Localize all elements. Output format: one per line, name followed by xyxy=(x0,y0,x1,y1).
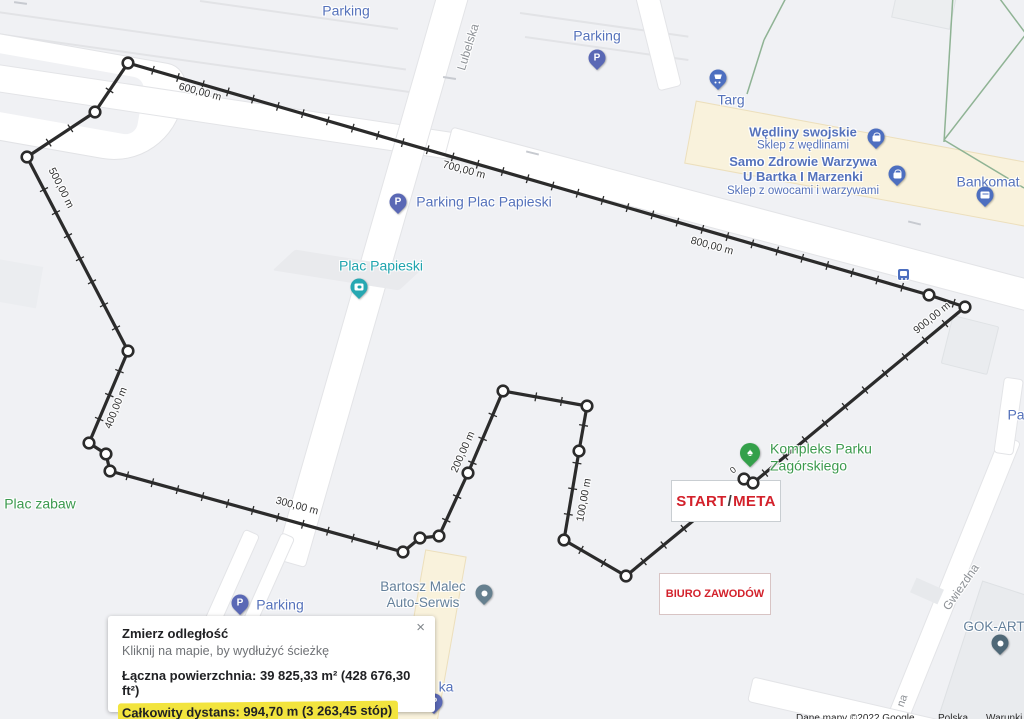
bag-pin-icon[interactable] xyxy=(864,125,888,149)
distance-label-20000: 200,00 m xyxy=(449,430,478,475)
samo-zdrowie-label[interactable]: Samo Zdrowie WarzywaU Bartka I MarzenkiS… xyxy=(727,154,879,198)
google-maps-canvas[interactable]: 0100,00 m200,00 m300,00 m400,00 m500,00 … xyxy=(0,0,1024,719)
total-distance-value: Całkowity dystans: 994,70 m (3 263,45 st… xyxy=(118,701,398,719)
parking-plac-papieski-label[interactable]: Parking Plac Papieski xyxy=(416,194,551,211)
kompleks-parku-zagorskiego-label[interactable]: Kompleks ParkuZagórskiego xyxy=(770,440,872,473)
bag-pin-icon[interactable] xyxy=(885,162,909,186)
distance-label-40000: 400,00 m xyxy=(102,385,130,430)
gwiezdna-street-label: Gwiezdna xyxy=(940,561,982,613)
distance-label-10000: 100,00 m xyxy=(574,477,593,522)
map-labels-layer: 0100,00 m200,00 m300,00 m400,00 m500,00 … xyxy=(0,0,1024,719)
targ-label[interactable]: Targ xyxy=(717,92,744,109)
distance-label-0: 0 xyxy=(728,465,738,476)
wedliny-swojskie-label[interactable]: Wędliny swojskieSklep z wędlinami xyxy=(749,125,857,154)
tree-pin-icon[interactable]: ♠ xyxy=(736,439,764,467)
close-icon[interactable]: × xyxy=(416,619,425,636)
dot-pin-icon[interactable] xyxy=(988,631,1012,655)
distance-label-80000: 800,00 m xyxy=(689,235,734,258)
start-meta-box: START/META xyxy=(671,480,781,522)
map-data-attribution: Dane mapy ©2022 Google xyxy=(796,713,915,719)
country-label: Polska xyxy=(938,713,968,719)
distance-label-60000: 600,00 m xyxy=(177,81,222,104)
card-subtitle: Kliknij na mapie, by wydłużyć ścieżkę xyxy=(122,644,421,658)
bartosz-malec-auto-serwis-label[interactable]: Bartosz MalecAuto-Serwis xyxy=(380,579,466,611)
distance-label-50000: 500,00 m xyxy=(46,166,77,210)
parking-top-label[interactable]: Parking xyxy=(322,3,369,20)
meta-label: META xyxy=(733,493,776,510)
distance-label-70000: 700,00 m xyxy=(441,159,486,182)
atm-pin-icon[interactable] xyxy=(973,183,997,207)
parking-pin-icon[interactable]: P xyxy=(228,591,252,615)
parking-pin-icon[interactable]: P xyxy=(386,190,410,214)
bus-stop-icon[interactable] xyxy=(897,268,910,281)
plac-papieski-label[interactable]: Plac Papieski xyxy=(339,258,423,275)
distance-label-30000: 300,00 m xyxy=(274,495,319,518)
measure-distance-card: × Zmierz odległość Kliknij na mapie, by … xyxy=(108,616,435,712)
parking-top-2-label[interactable]: Parking xyxy=(573,28,620,45)
parking-pin-icon[interactable]: P xyxy=(585,46,609,70)
pa-label-label[interactable]: Pa xyxy=(1007,407,1024,424)
dot-pin-icon[interactable] xyxy=(472,581,496,605)
race-office-label: BIURO ZAWODÓW xyxy=(666,588,764,600)
na-street-fragment-label: na xyxy=(895,693,911,709)
card-title: Zmierz odległość xyxy=(122,626,421,641)
total-distance-row: Całkowity dystans: 994,70 m (3 263,45 st… xyxy=(122,702,421,719)
lubelska-street-label: Lubelska xyxy=(454,22,482,72)
gok-art-label[interactable]: GOK-ART xyxy=(963,619,1024,635)
distance-label-90000: 900,00 m xyxy=(911,300,953,337)
terms-link[interactable]: Warunki xyxy=(986,713,1022,719)
plac-zabaw-label[interactable]: Plac zabaw xyxy=(4,496,76,513)
cart-pin-icon[interactable] xyxy=(706,66,730,90)
camera-pin-icon[interactable] xyxy=(347,275,371,299)
start-label: START xyxy=(676,493,726,510)
total-area-value: Łączna powierzchnia: 39 825,33 m² (428 6… xyxy=(122,668,421,698)
race-office-box: BIURO ZAWODÓW xyxy=(659,573,771,615)
parking-bottom-label[interactable]: Parking xyxy=(256,597,303,614)
